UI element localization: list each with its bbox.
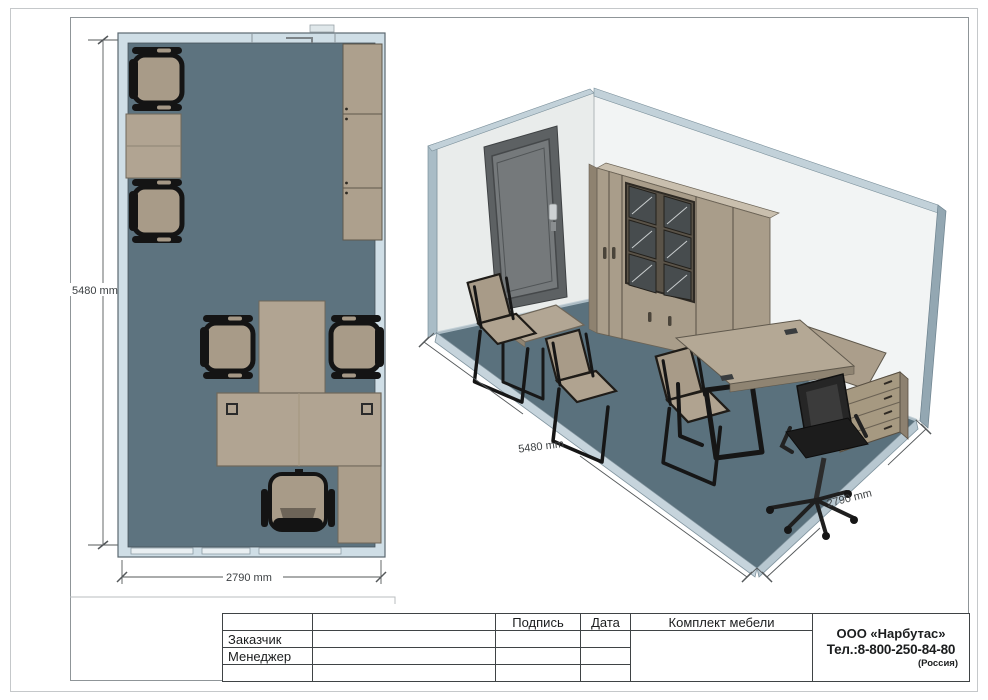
sheet: 5480 mm 2790 mm <box>0 0 988 700</box>
tb-manager-value <box>313 648 496 665</box>
plan-dim-horizontal-label: 2790 mm <box>226 572 272 584</box>
plan-guest-chair-2 <box>129 179 182 243</box>
tb-manager-signature <box>496 648 581 665</box>
plan-dim-vertical-label: 5480 mm <box>72 285 118 297</box>
tb-customer-signature <box>496 631 581 648</box>
floor-plan: 5480 mm 2790 mm <box>69 25 386 584</box>
plan-meeting-extension <box>259 301 325 393</box>
tb-extra-value <box>313 665 496 682</box>
tb-extra-signature <box>496 665 581 682</box>
tb-customer-label: Заказчик <box>223 631 313 648</box>
plan-region-divider <box>70 597 395 604</box>
wardrobe-glass-doors <box>626 183 694 302</box>
tb-customer-value <box>313 631 496 648</box>
tb-signature-header: Подпись <box>496 614 581 631</box>
tb-extra-label <box>223 665 313 682</box>
tb-manager-date <box>581 648 631 665</box>
plan-visitor-chair-right <box>331 315 384 379</box>
plan-desk <box>217 393 381 466</box>
tb-customer-date <box>581 631 631 648</box>
plan-office-chair <box>261 469 335 531</box>
tb-company-cell: ООО «Нарбутас» Тел.:8-800-250-84-80 (Рос… <box>813 614 970 682</box>
tb-set-value <box>631 631 813 682</box>
iso-dim-left-label: 5480 mm <box>518 438 565 455</box>
tb-cell-blank-1 <box>223 614 313 631</box>
plan-desk-return <box>338 466 381 543</box>
plan-windows <box>131 548 341 554</box>
plan-visitor-chair-left <box>200 315 253 379</box>
plan-guest-chair-1 <box>129 47 182 111</box>
iso-door-handle <box>549 204 557 220</box>
iso-view: 5480 mm 2790 mm <box>419 88 946 582</box>
company-phone: Тел.:8-800-250-84-80 <box>818 642 964 658</box>
drawing-canvas: 5480 mm 2790 mm <box>0 0 988 700</box>
tb-manager-label: Менеджер <box>223 648 313 665</box>
plan-dim-horizontal: 2790 mm <box>117 560 386 584</box>
title-block: Подпись Дата Комплект мебели ООО «Нарбут… <box>222 613 970 682</box>
plan-dim-vertical: 5480 mm <box>69 36 118 549</box>
plan-side-table <box>126 114 181 178</box>
company-name: ООО «Нарбутас» <box>818 626 964 642</box>
tb-date-header: Дата <box>581 614 631 631</box>
tb-cell-blank-2 <box>313 614 496 631</box>
company-country: (Россия) <box>818 658 964 669</box>
tb-set-header: Комплект мебели <box>631 614 813 631</box>
plan-cabinet <box>343 44 382 240</box>
tb-extra-date <box>581 665 631 682</box>
